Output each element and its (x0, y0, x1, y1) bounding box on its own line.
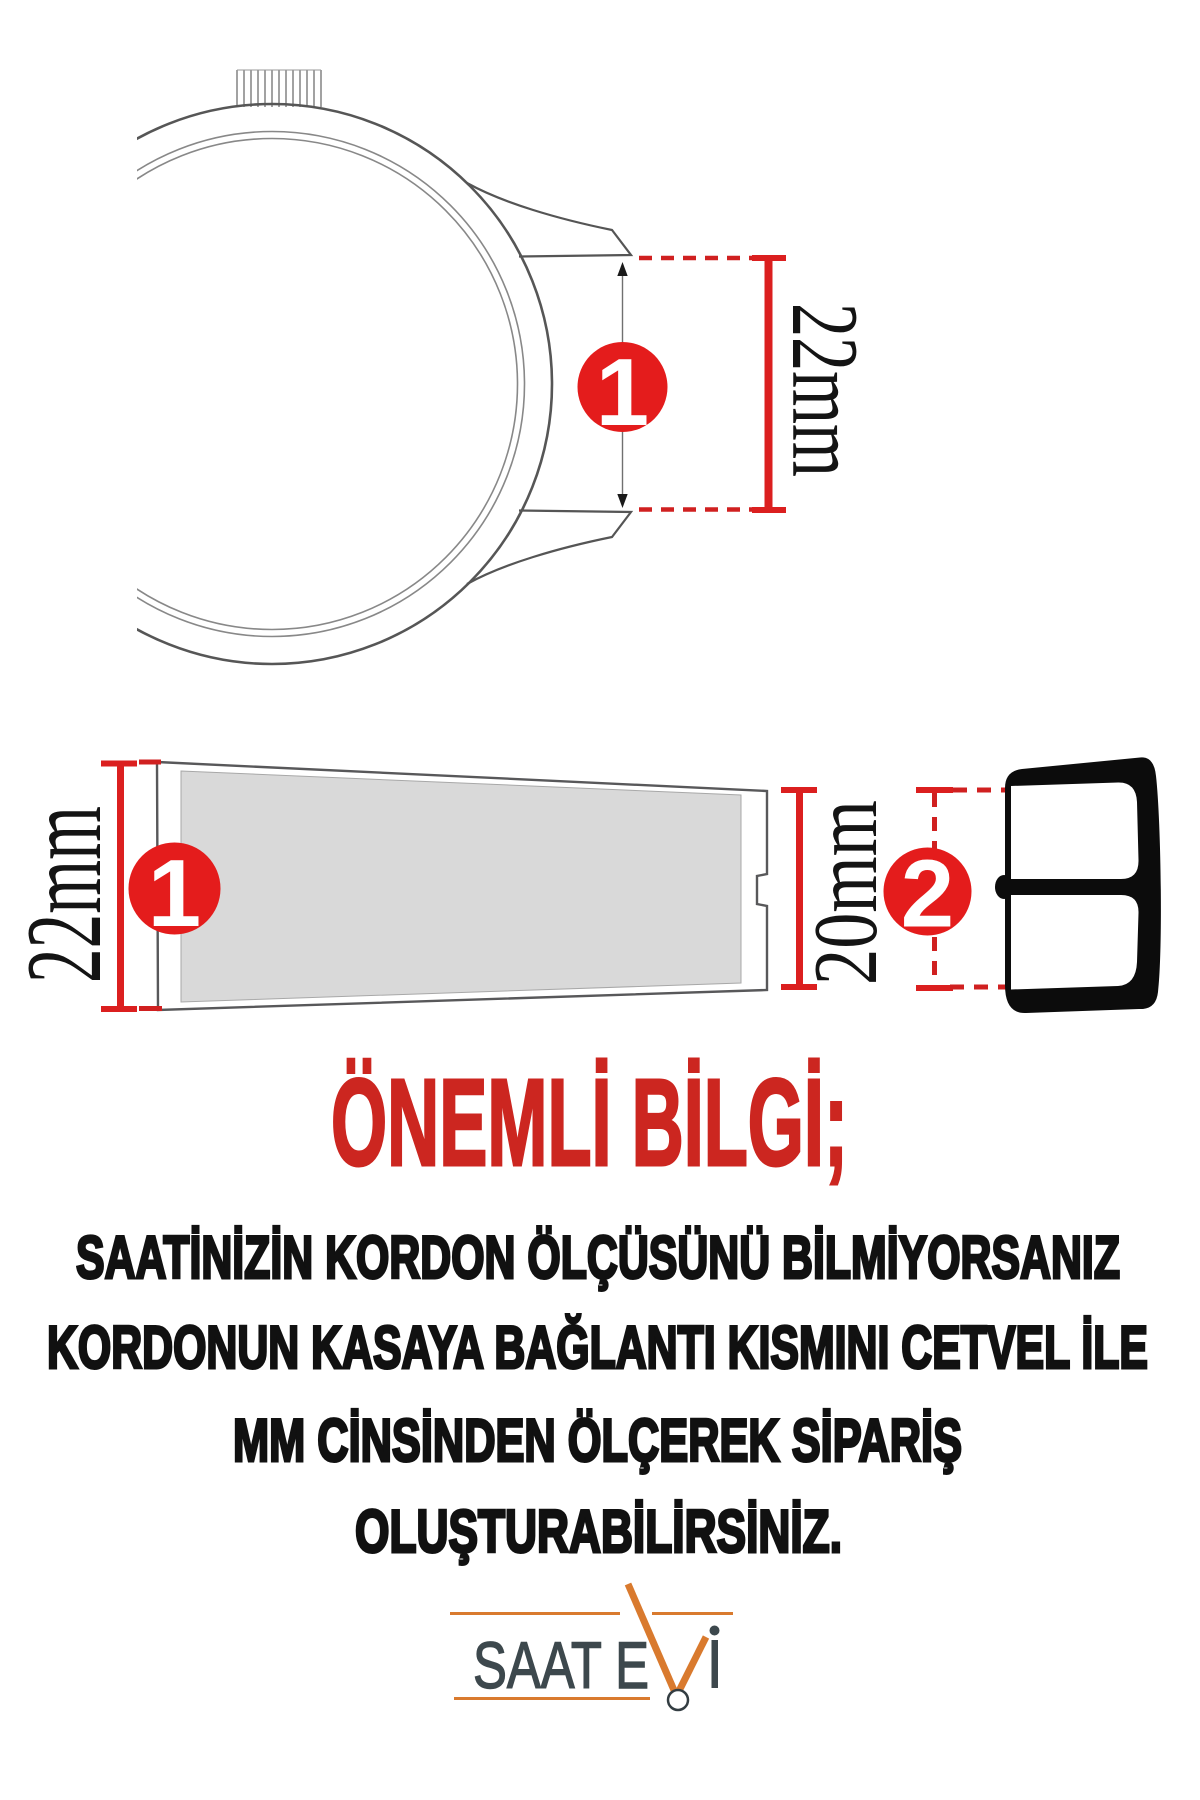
svg-text:1: 1 (596, 339, 649, 446)
svg-text:2: 2 (901, 841, 954, 948)
svg-text:ÖNEMLİ BİLGİ;: ÖNEMLİ BİLGİ; (331, 1055, 848, 1192)
svg-text:1: 1 (148, 840, 201, 947)
svg-text:SAAT E: SAAT E (473, 1628, 649, 1702)
svg-text:SAATİNİZİN KORDON ÖLÇÜSÜNÜ BİL: SAATİNİZİN KORDON ÖLÇÜSÜNÜ BİLMİYORSANIZ (76, 1224, 1120, 1291)
svg-text:22mm: 22mm (772, 303, 878, 477)
svg-text:22mm: 22mm (5, 806, 124, 983)
svg-text:KORDONUN KASAYA BAĞLANTI KISMI: KORDONUN KASAYA BAĞLANTI KISMINI CETVEL … (47, 1314, 1148, 1381)
svg-text:MM CİNSİNDEN ÖLÇEREK SİPARİŞ: MM CİNSİNDEN ÖLÇEREK SİPARİŞ (233, 1407, 962, 1474)
svg-text:OLUŞTURABİLİRSİNİZ.: OLUŞTURABİLİRSİNİZ. (355, 1498, 842, 1565)
svg-text:20mm: 20mm (795, 800, 896, 985)
